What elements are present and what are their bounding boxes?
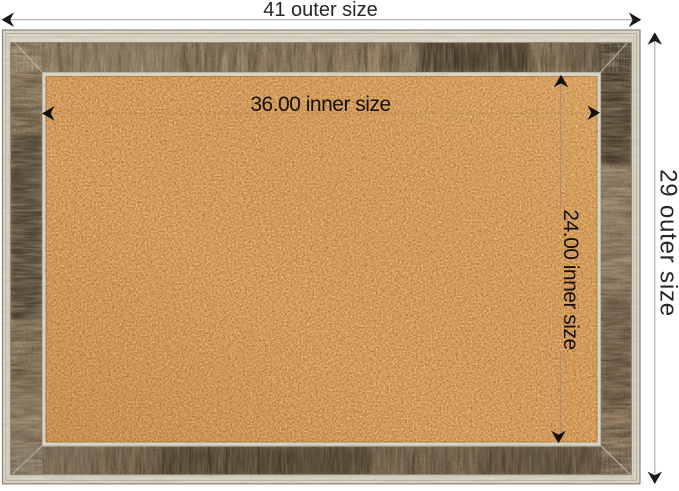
svg-text:41 outer size: 41 outer size bbox=[263, 0, 378, 21]
svg-text:29 outer size: 29 outer size bbox=[655, 169, 679, 317]
svg-text:24.00 inner size: 24.00 inner size bbox=[559, 209, 582, 349]
svg-text:36.00 inner size: 36.00 inner size bbox=[250, 93, 390, 116]
